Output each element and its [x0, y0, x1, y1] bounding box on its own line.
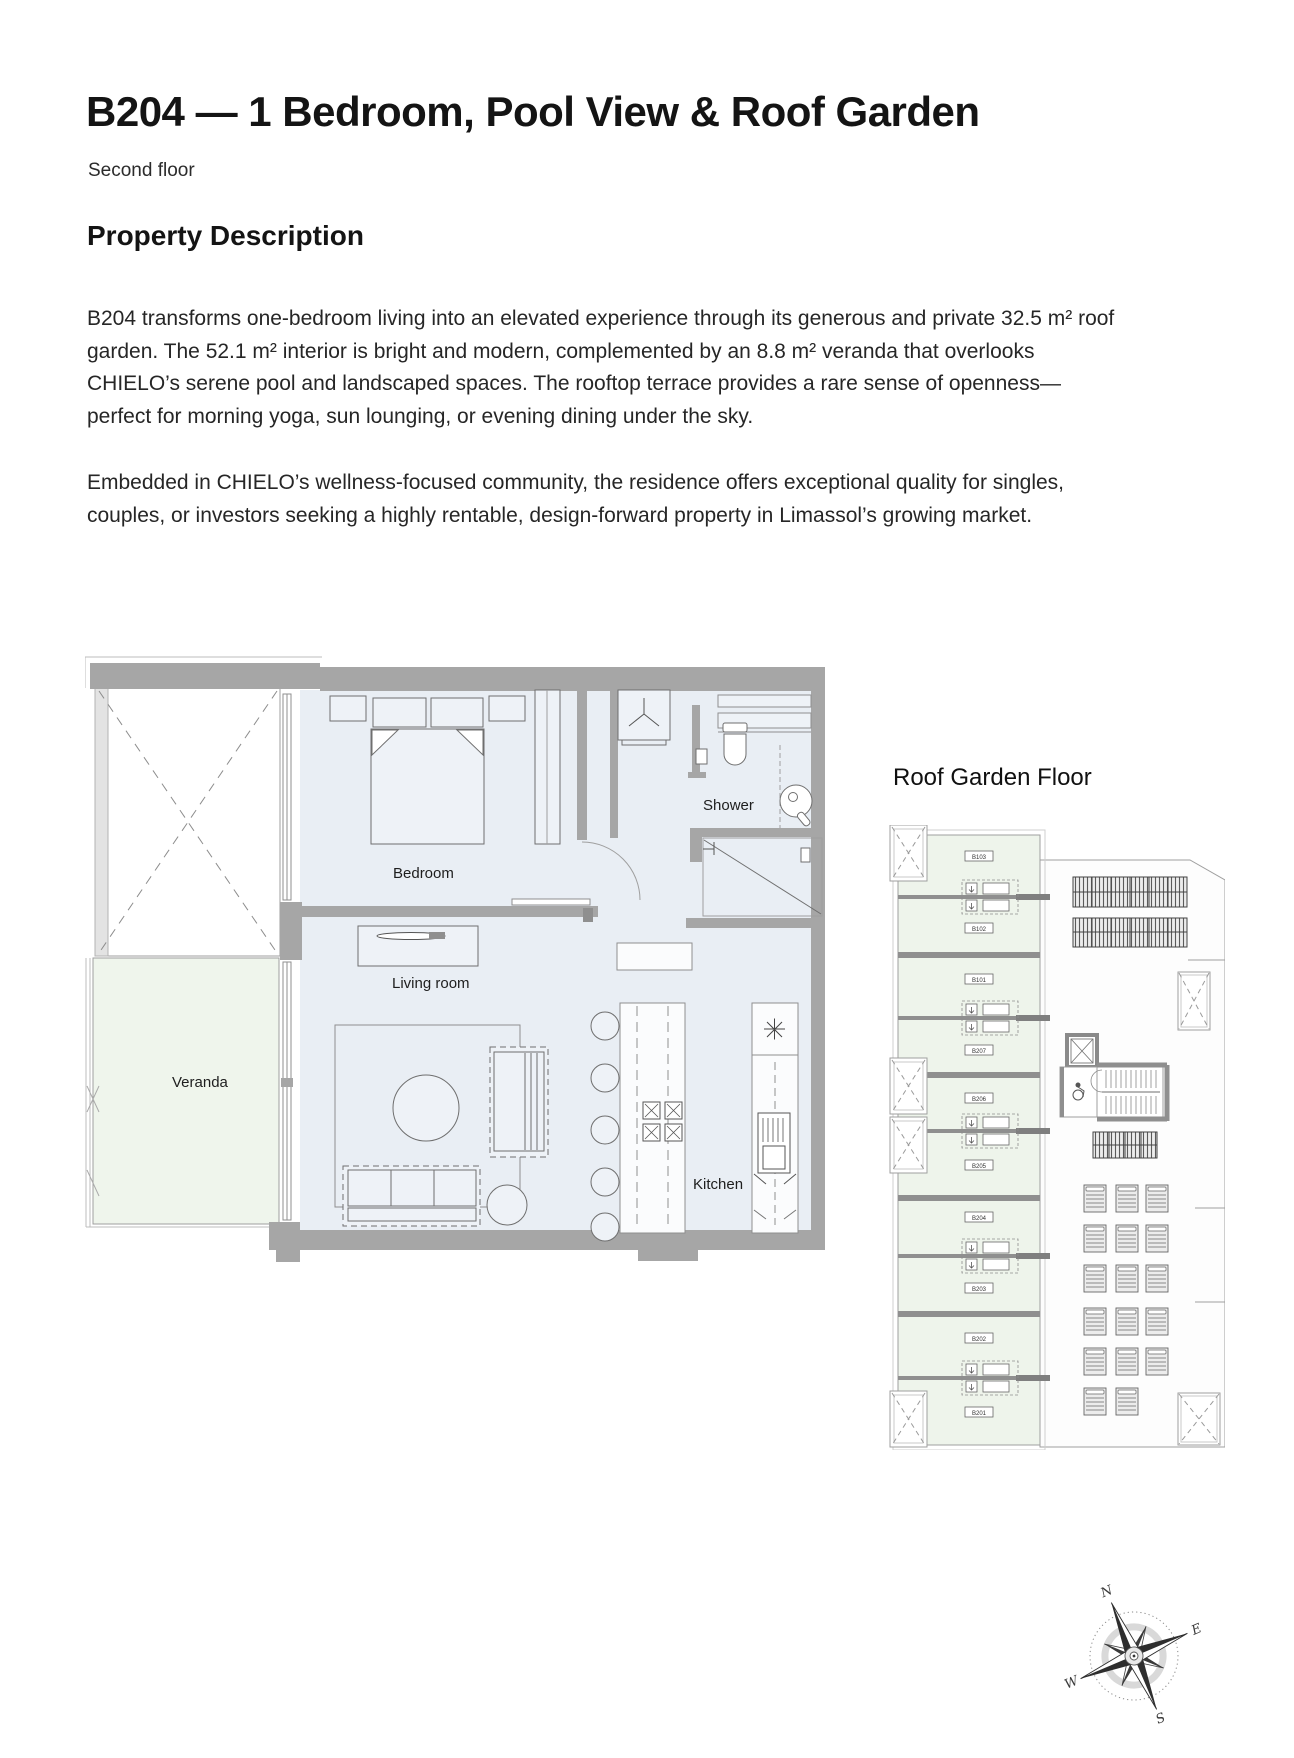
description-paragraph-2: Embedded in CHIELO’s wellness-focused co…	[87, 467, 1117, 532]
page-title: B204 — 1 Bedroom, Pool View & Roof Garde…	[86, 88, 980, 136]
sofa	[343, 1166, 480, 1226]
roof-plan-title: Roof Garden Floor	[893, 764, 1092, 792]
unit-label: B101	[972, 978, 987, 984]
kitchen-label: Kitchen	[693, 1176, 743, 1193]
unit-label: B206	[972, 1097, 987, 1103]
veranda-area	[86, 958, 279, 1227]
left-shaft-3	[890, 1117, 927, 1173]
accessible-wc	[1060, 1067, 1097, 1117]
property-sheet-page: B204 — 1 Bedroom, Pool View & Roof Garde…	[0, 0, 1294, 1758]
compass-s: S	[1154, 1710, 1168, 1727]
roof-garden-plan: B103 B102 B101 B207 B206 B205 B204 B203 …	[878, 825, 1225, 1450]
main-floorplan: Bedroom Living room Veranda Kitchen Show…	[85, 650, 830, 1270]
side-table	[487, 1185, 527, 1225]
floor-subtitle: Second floor	[88, 160, 195, 182]
living-room-label: Living room	[392, 975, 470, 992]
elevator	[1067, 1035, 1097, 1067]
shower-label: Shower	[703, 797, 754, 814]
compass-w: W	[1063, 1673, 1083, 1693]
unit-label: B204	[972, 1216, 987, 1222]
left-shaft-1	[890, 825, 927, 881]
left-shaft-4	[890, 1391, 927, 1447]
unit-label: B103	[972, 855, 987, 861]
section-heading: Property Description	[87, 220, 364, 252]
wall-shelf	[512, 899, 590, 905]
kitchen-counter	[752, 1003, 798, 1233]
lounge-chair	[490, 1047, 548, 1157]
coffee-table	[393, 1075, 459, 1141]
veranda-label: Veranda	[172, 1074, 229, 1091]
toilet-icon	[723, 723, 747, 765]
right-shaft-1	[1178, 972, 1210, 1030]
fridge-icon	[754, 1113, 796, 1184]
unit-label: B205	[972, 1164, 987, 1170]
description-paragraph-1: B204 transforms one-bedroom living into …	[87, 303, 1117, 433]
unit-label: B201	[972, 1411, 987, 1417]
compass-e: E	[1189, 1621, 1205, 1639]
unit-label: B102	[972, 927, 987, 933]
closet	[618, 690, 670, 745]
unit-label: B207	[972, 1049, 987, 1055]
stairs	[1091, 1065, 1167, 1121]
compass-n: N	[1098, 1583, 1116, 1602]
unit-label: B203	[972, 1287, 987, 1293]
bedroom-label: Bedroom	[393, 865, 454, 882]
unit-label: B202	[972, 1337, 987, 1343]
left-shaft-2	[890, 1058, 927, 1114]
right-shaft-2	[1178, 1393, 1220, 1445]
compass-rose: N E S W	[1062, 1578, 1212, 1730]
